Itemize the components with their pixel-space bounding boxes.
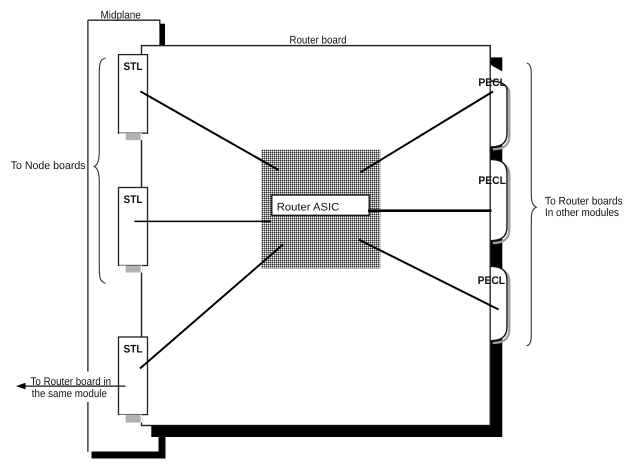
svg-text:PECL: PECL xyxy=(478,275,506,287)
svg-text:PECL: PECL xyxy=(478,77,506,89)
svg-text:To Router boards: To Router boards xyxy=(545,196,623,208)
svg-text:STL: STL xyxy=(124,194,143,206)
svg-text:To Node boards: To Node boards xyxy=(11,160,86,172)
svg-text:Router ASIC: Router ASIC xyxy=(277,202,339,214)
svg-text:To Router board in: To Router board in xyxy=(31,376,112,388)
svg-text:STL: STL xyxy=(124,343,143,355)
svg-text:STL: STL xyxy=(124,61,143,73)
svg-text:the same module: the same module xyxy=(32,388,107,400)
svg-text:In other modules: In other modules xyxy=(545,207,619,219)
svg-text:Router board: Router board xyxy=(289,34,346,46)
svg-text:PECL: PECL xyxy=(478,175,506,187)
